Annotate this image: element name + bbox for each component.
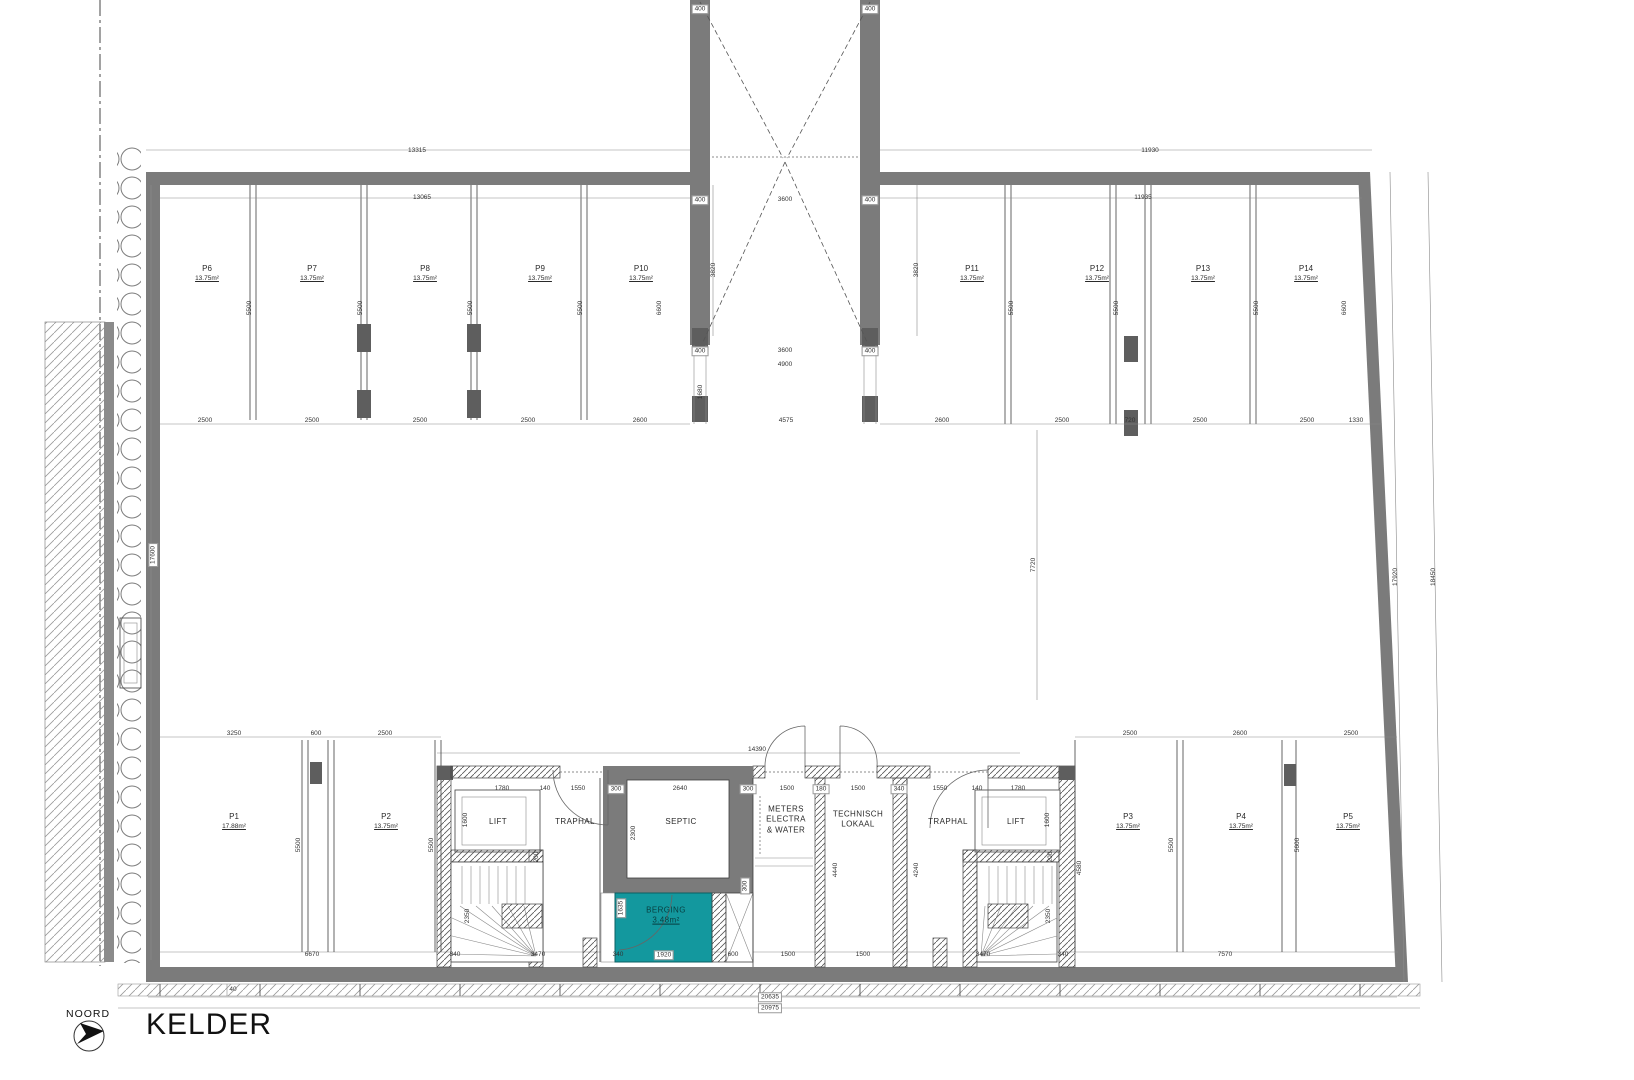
parking-stall-label-P10: P1013.75m²	[629, 264, 653, 284]
dim-label: 2600	[935, 418, 949, 425]
dim-label: 1780	[1011, 786, 1025, 793]
dim-label: 14390	[748, 747, 766, 754]
parking-stall-label-P12: P1213.75m²	[1085, 264, 1109, 284]
dim-label: 2600	[1233, 731, 1247, 738]
dim-label: 13315	[408, 148, 426, 155]
dim-label: 1600	[463, 813, 470, 827]
room-label-traphal-left: TRAPHAL	[555, 817, 595, 827]
dim-label: 400	[693, 196, 708, 204]
dim-label: 3820	[711, 263, 718, 277]
dim-label: 400	[863, 5, 878, 13]
floorplan-canvas: 1331511930130651193540040040036004003820…	[0, 0, 1634, 1080]
dim-label: 2500	[413, 418, 427, 425]
dim-label: 7720	[1031, 558, 1038, 572]
dim-label: 2500	[521, 418, 535, 425]
dim-label: 340	[1058, 952, 1069, 959]
dim-label: 6670	[305, 952, 319, 959]
dim-label: 1635	[617, 899, 625, 917]
dim-label: 1550	[571, 786, 585, 793]
parking-stall-label-P6: P613.75m²	[195, 264, 219, 284]
dim-label: 340	[613, 952, 624, 959]
parking-stall-label-P14: P1413.75m²	[1294, 264, 1318, 284]
dim-label: 2500	[1300, 418, 1314, 425]
dim-label: 17600	[149, 544, 157, 566]
dim-label: 5600	[1295, 838, 1302, 852]
room-label-technisch-lokaal: TECHNISCHLOKAAL	[833, 810, 883, 831]
dim-label: 1680	[698, 385, 705, 399]
room-label-septic: SEPTIC	[665, 817, 696, 827]
parking-stall-label-P4: P413.75m²	[1229, 812, 1253, 832]
parking-stall-label-P3: P313.75m²	[1116, 812, 1140, 832]
label-layer: 1331511930130651193540040040036004003820…	[0, 0, 1634, 1080]
dim-label: 2500	[1193, 418, 1207, 425]
dim-label: 2500	[305, 418, 319, 425]
dim-label: 400	[693, 5, 708, 13]
dim-label: 20975	[759, 1004, 781, 1012]
dim-label: 2500	[378, 731, 392, 738]
parking-stall-label-P2: P213.75m²	[374, 812, 398, 832]
dim-label: 720	[1125, 418, 1136, 425]
north-label: NOORD	[66, 1008, 110, 1020]
parking-stall-label-P13: P1313.75m²	[1191, 264, 1215, 284]
dim-label: 5500	[468, 301, 475, 315]
parking-stall-label-P8: P813.75m²	[413, 264, 437, 284]
dim-label: 2300	[631, 826, 638, 840]
dim-label: 5500	[1254, 301, 1261, 315]
dim-label: 13065	[413, 195, 431, 202]
room-label-berging: BERGING3.48m²	[646, 906, 686, 927]
dim-label: 5500	[1114, 301, 1121, 315]
dim-label: 200	[1048, 852, 1055, 863]
dim-label: 20635	[759, 993, 781, 1001]
dim-label: 5500	[578, 301, 585, 315]
dim-label: 600	[311, 731, 322, 738]
plan-title: KELDER	[146, 1008, 272, 1042]
dim-label: 1550	[933, 786, 947, 793]
dim-label: 2640	[673, 786, 687, 793]
dim-label: 4580	[1077, 861, 1084, 875]
parking-stall-label-P5: P513.75m²	[1336, 812, 1360, 832]
dim-label: 140	[540, 786, 551, 793]
dim-label: 5500	[429, 838, 436, 852]
dim-label: 6600	[1342, 301, 1349, 315]
dim-label: 140	[972, 786, 983, 793]
dim-label: 200	[534, 852, 541, 863]
room-label-lift-left: LIFT	[489, 817, 507, 827]
dim-label: 40	[229, 987, 236, 994]
dim-label: 4900	[778, 362, 792, 369]
dim-label: 3470	[976, 952, 990, 959]
dim-label: 2350	[1046, 909, 1053, 923]
dim-label: 1500	[851, 786, 865, 793]
room-label-lift-right: LIFT	[1007, 817, 1025, 827]
dim-label: 11935	[1134, 195, 1152, 202]
dim-label: 340	[450, 952, 461, 959]
dim-label: 340	[892, 785, 907, 793]
parking-stall-label-P7: P713.75m²	[300, 264, 324, 284]
dim-label: 1330	[1349, 418, 1363, 425]
dim-label: 400	[863, 347, 878, 355]
dim-label: 4575	[779, 418, 793, 425]
dim-label: 18450	[1431, 568, 1438, 586]
dim-label: 6600	[657, 301, 664, 315]
dim-label: 4240	[914, 863, 921, 877]
dim-label: 3600	[778, 348, 792, 355]
dim-label: 5500	[1169, 838, 1176, 852]
dim-label: 2350	[465, 909, 472, 923]
dim-label: 300	[741, 785, 756, 793]
dim-label: 2600	[633, 418, 647, 425]
room-label-traphal-right: TRAPHAL	[928, 817, 968, 827]
dim-label: 3470	[531, 952, 545, 959]
dim-label: 5500	[247, 301, 254, 315]
dim-label: 300	[609, 785, 624, 793]
dim-label: 3820	[914, 263, 921, 277]
dim-label: 3600	[778, 197, 792, 204]
room-label-meters-electra-water: METERSELECTRA& WATER	[766, 804, 806, 835]
dim-label: 2500	[1055, 418, 1069, 425]
dim-label: 600	[728, 952, 739, 959]
dim-label: 3250	[227, 731, 241, 738]
dim-label: 4440	[833, 863, 840, 877]
dim-label: 2500	[1344, 731, 1358, 738]
dim-label: 1500	[780, 786, 794, 793]
parking-stall-label-P11: P1113.75m²	[960, 264, 984, 284]
dim-label: 300	[741, 879, 749, 894]
dim-label: 2500	[1123, 731, 1137, 738]
dim-label: 7570	[1218, 952, 1232, 959]
dim-label: 5500	[296, 838, 303, 852]
dim-label: 180	[814, 785, 829, 793]
dim-label: 1500	[781, 952, 795, 959]
dim-label: 1500	[856, 952, 870, 959]
dim-label: 400	[863, 196, 878, 204]
dim-label: 2500	[198, 418, 212, 425]
parking-stall-label-P1: P117.88m²	[222, 812, 246, 832]
dim-label: 1920	[655, 951, 673, 959]
dim-label: 1780	[495, 786, 509, 793]
dim-label: 11930	[1141, 148, 1159, 155]
dim-label: 5500	[358, 301, 365, 315]
dim-label: 5500	[1009, 301, 1016, 315]
dim-label: 1600	[1045, 813, 1052, 827]
dim-label: 400	[693, 347, 708, 355]
parking-stall-label-P9: P913.75m²	[528, 264, 552, 284]
dim-label: 17920	[1393, 568, 1400, 586]
